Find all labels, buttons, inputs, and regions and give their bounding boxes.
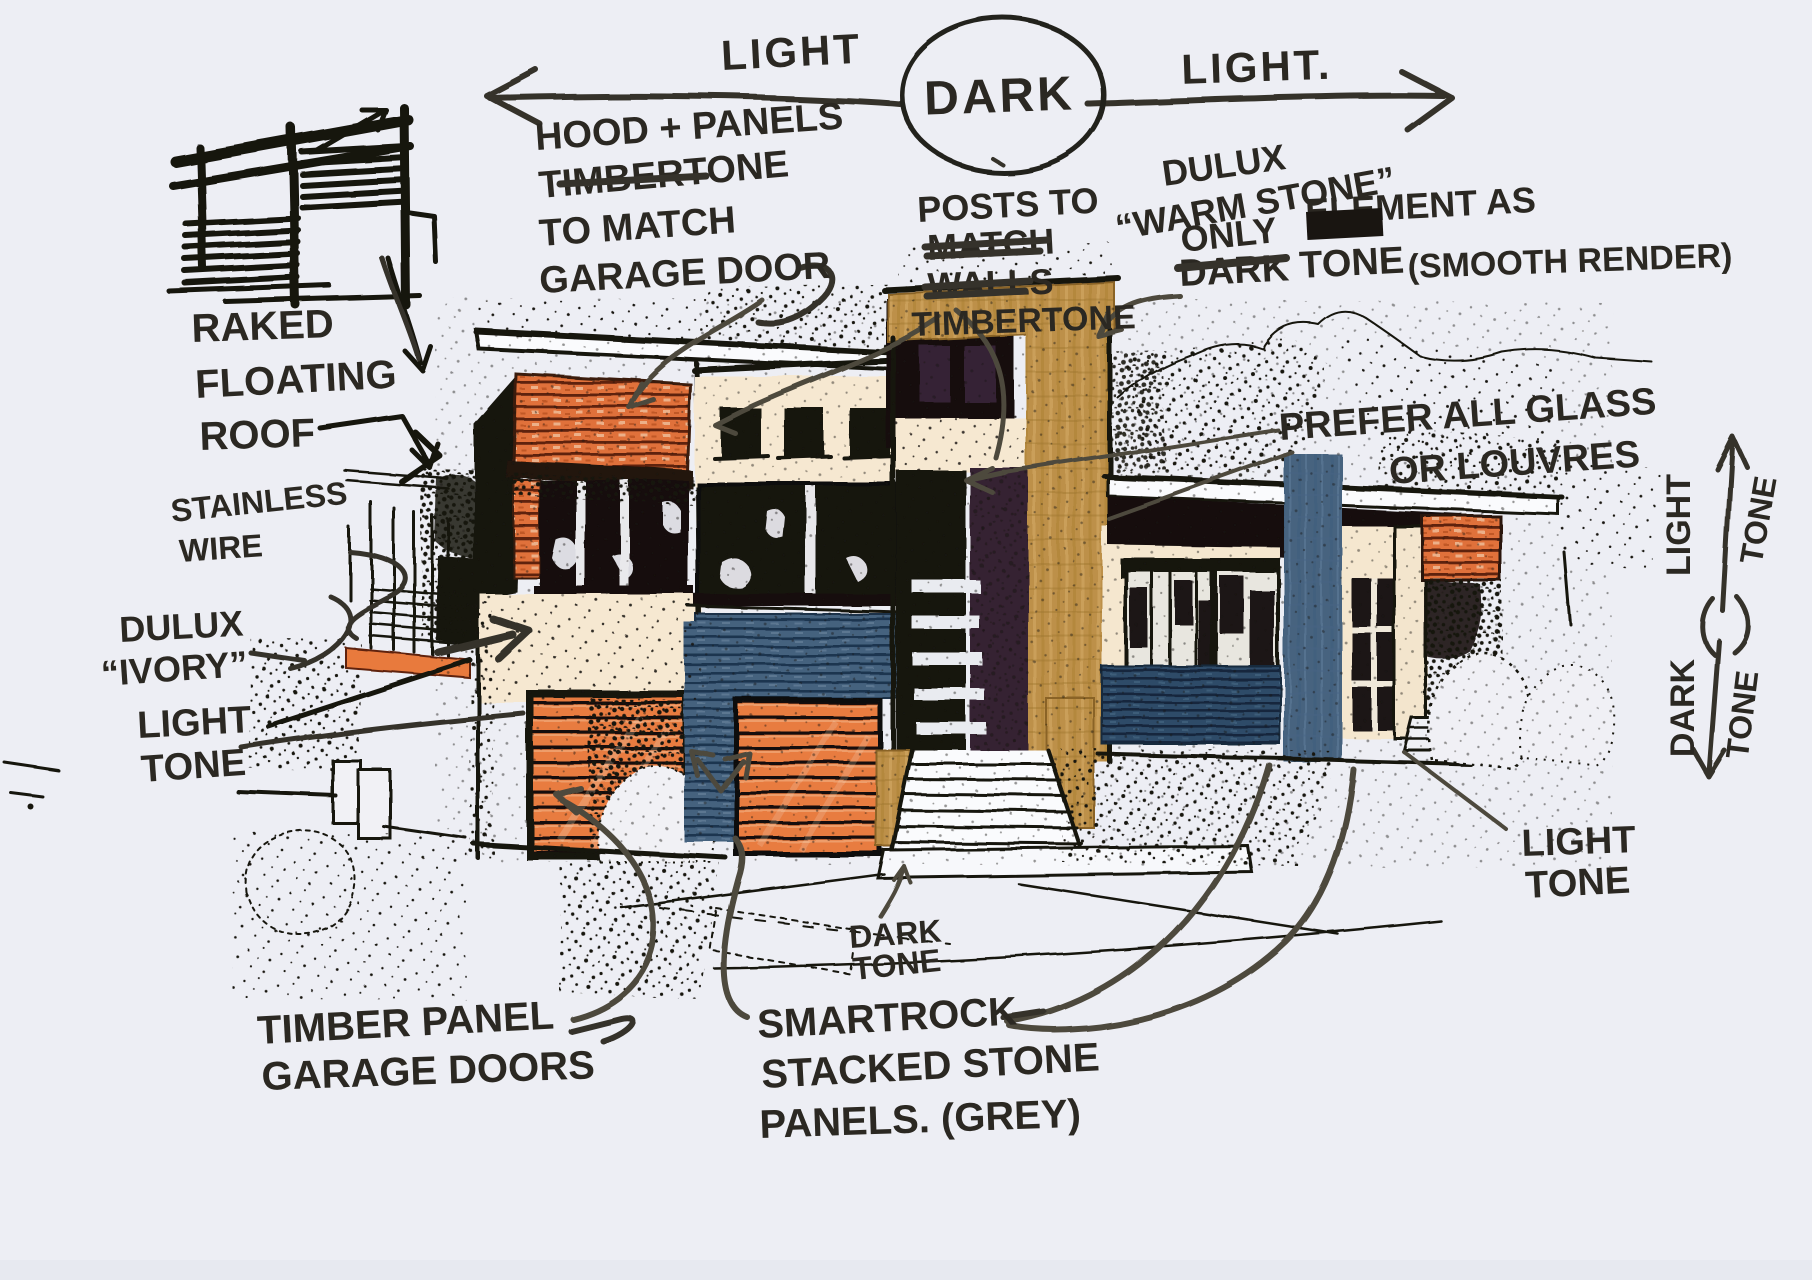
svg-text:DARK: DARK: [923, 67, 1075, 125]
svg-text:LIGHT: LIGHT: [136, 699, 252, 747]
svg-text:LIGHT: LIGHT: [1660, 474, 1698, 576]
svg-text:LIGHT: LIGHT: [1521, 819, 1636, 865]
svg-text:RAKED: RAKED: [191, 302, 335, 351]
svg-text:TONE: TONE: [1298, 240, 1405, 287]
svg-text:TIMBERTONE: TIMBERTONE: [911, 298, 1136, 344]
svg-text:DARK: DARK: [1664, 658, 1702, 757]
svg-text:DARK: DARK: [1178, 247, 1290, 295]
svg-text:ROOF: ROOF: [199, 411, 316, 459]
svg-text:TONE: TONE: [140, 742, 248, 791]
svg-text:WIRE: WIRE: [178, 527, 264, 569]
svg-text:LIGHT.: LIGHT.: [1181, 41, 1334, 93]
svg-text:LIGHT: LIGHT: [720, 25, 863, 79]
svg-text:DULUX: DULUX: [118, 603, 244, 650]
svg-text:TONE: TONE: [1524, 860, 1631, 907]
